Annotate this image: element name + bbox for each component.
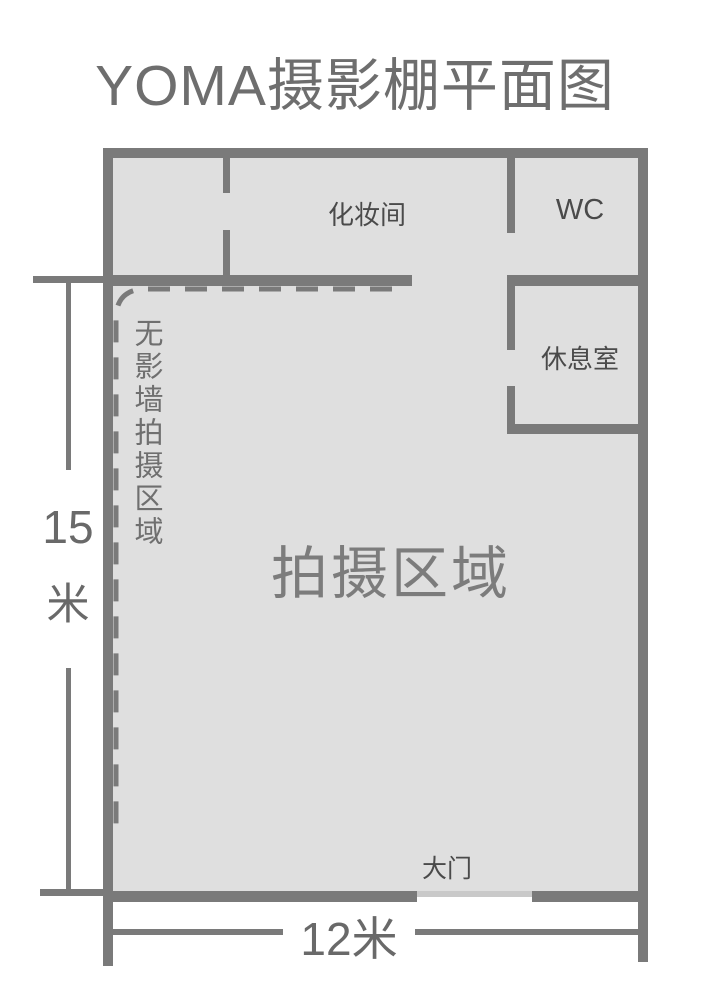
height-dimension-unit: 米 bbox=[36, 570, 100, 632]
height-dimension-top-tick bbox=[33, 276, 103, 283]
seamless-wall-area-label: 无影墙拍摄区域 bbox=[125, 318, 167, 549]
makeup-room-bottom-wall bbox=[103, 275, 412, 286]
makeup-partition-upper bbox=[223, 158, 230, 193]
rest-room-top-wall bbox=[507, 275, 638, 286]
rest-room-bottom-wall bbox=[507, 424, 638, 434]
outer-wall-left bbox=[103, 148, 113, 966]
rest-room-left-wall-lower bbox=[507, 386, 515, 424]
wc-partition bbox=[507, 158, 515, 233]
makeup-partition-lower bbox=[223, 230, 230, 275]
outer-wall-right bbox=[638, 148, 648, 962]
main-door-label: 大门 bbox=[397, 849, 497, 885]
wc-room-label: WC bbox=[540, 194, 620, 227]
height-dimension-value: 15 bbox=[36, 500, 100, 554]
width-dimension-line-left bbox=[108, 929, 283, 935]
studio-floor bbox=[113, 158, 638, 891]
rest-room-left-wall-upper bbox=[507, 286, 515, 350]
makeup-room-label: 化妆间 bbox=[307, 195, 427, 232]
outer-wall-bottom-left-segment bbox=[103, 891, 417, 902]
outer-wall-bottom-right-segment bbox=[532, 891, 648, 902]
height-dimension-line-lower bbox=[66, 668, 71, 890]
floor-plan-canvas: YOMA摄影棚平面图 化妆间 WC 休息室 拍摄区域 无影墙拍摄区域 大门 15… bbox=[0, 0, 710, 1005]
outer-wall-top bbox=[103, 148, 648, 158]
page-title: YOMA摄影棚平面图 bbox=[0, 40, 710, 122]
rest-room-label: 休息室 bbox=[520, 339, 640, 376]
height-dimension-line-upper bbox=[66, 283, 71, 470]
main-door-threshold bbox=[417, 891, 532, 897]
shooting-area-label: 拍摄区域 bbox=[241, 528, 541, 610]
width-dimension-label: 12米 bbox=[289, 903, 409, 969]
width-dimension-line-right bbox=[415, 929, 645, 935]
height-dimension-bottom-tick bbox=[40, 889, 103, 896]
